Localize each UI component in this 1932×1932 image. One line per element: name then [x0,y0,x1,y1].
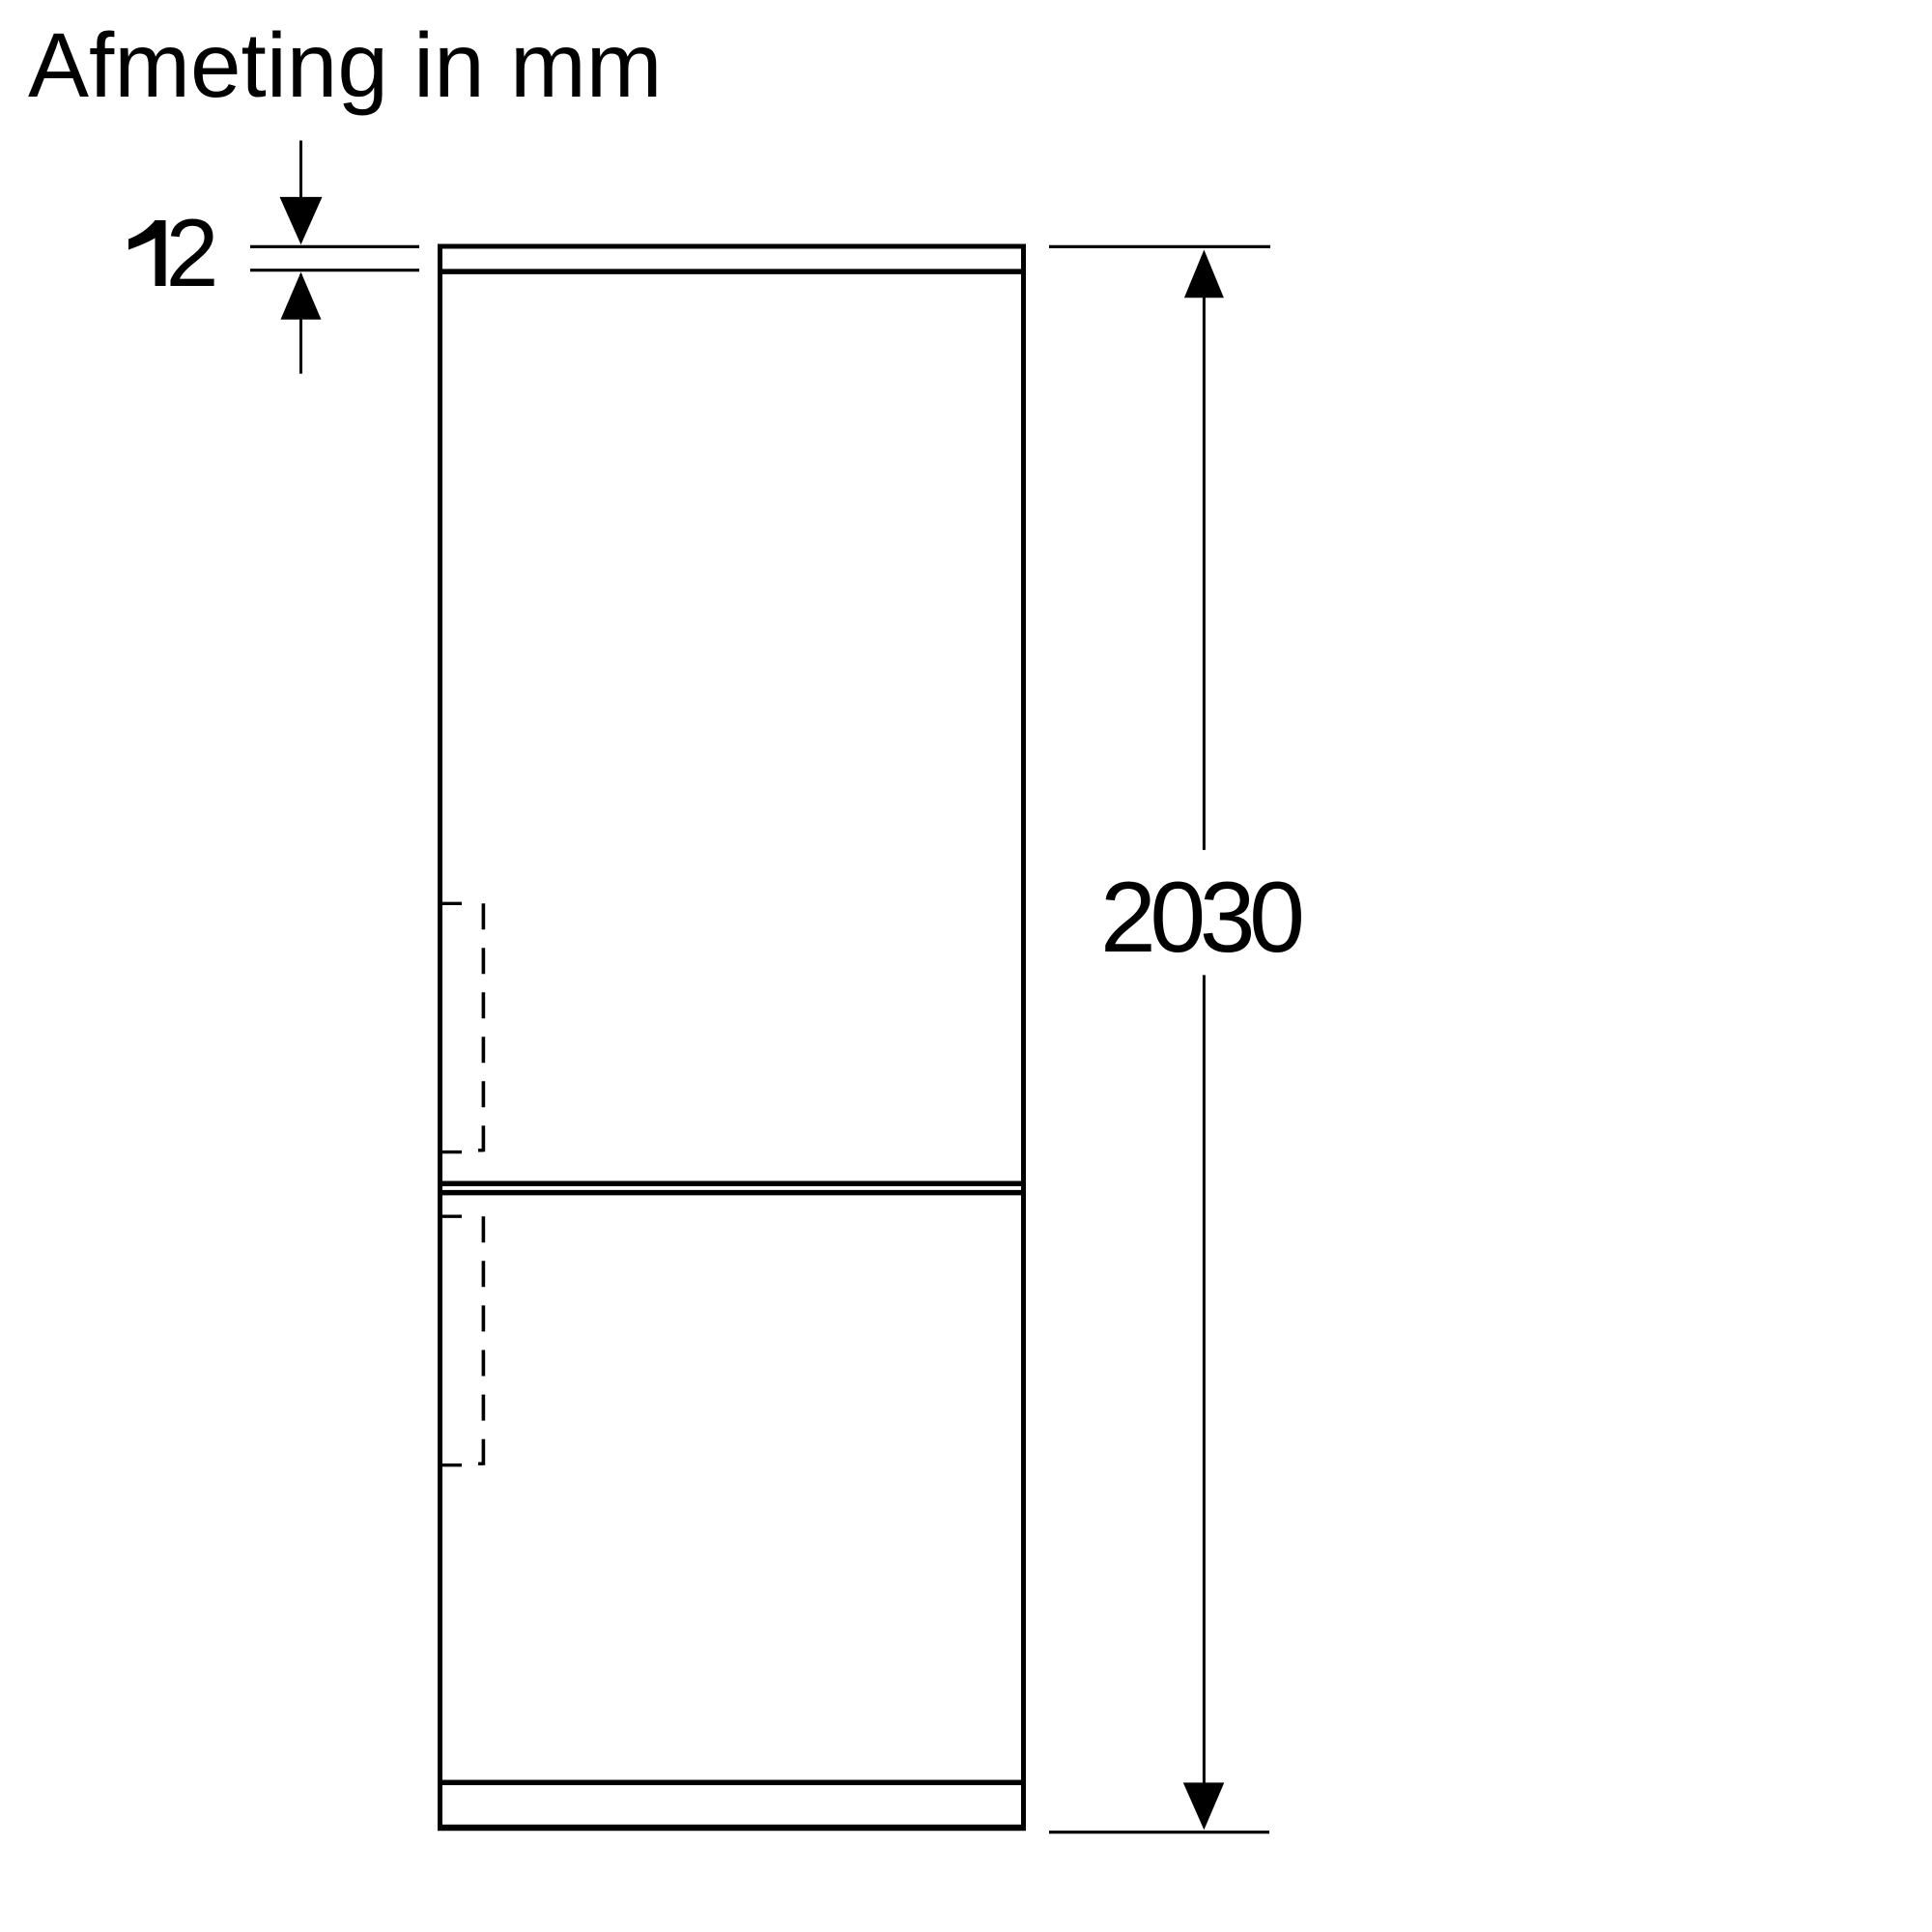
svg-text:Afmeting in mm: Afmeting in mm [28,14,662,117]
svg-text:2: 2 [166,199,219,306]
svg-text:2030: 2030 [1100,862,1305,974]
